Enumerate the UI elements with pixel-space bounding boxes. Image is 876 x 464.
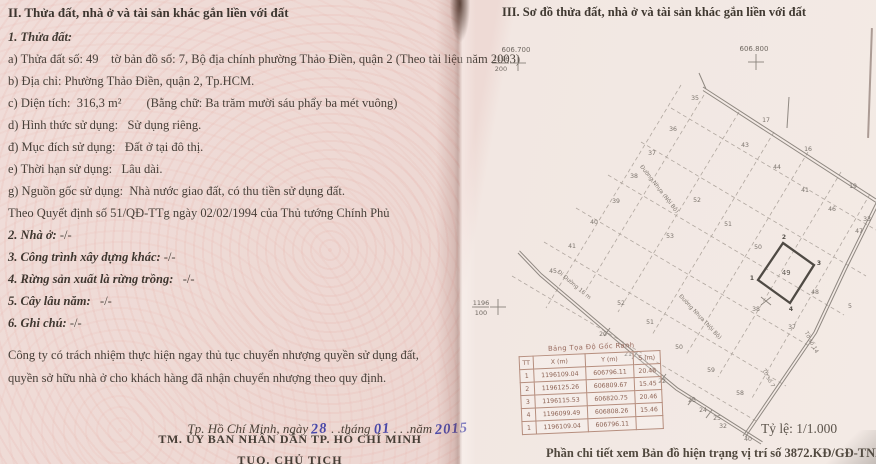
parcel-number: 52 [693, 197, 701, 204]
parcel-number: 51 [724, 221, 732, 228]
parcel-number: 52 [617, 300, 625, 307]
road-label: Đường Nhựa (Nội Bộ) [638, 164, 680, 215]
parcel-number: 47 [855, 228, 863, 235]
document-line: 3. Công trình xây dựng khác: -/- [8, 250, 464, 272]
grid-coordinate-fraction: 200 [495, 65, 507, 73]
parcel-number: 37 [788, 324, 796, 331]
document-line: g) Nguồn gốc sử dụng: Nhà nước giao đất,… [8, 184, 464, 206]
document-line: b) Địa chỉ: Phường Thảo Điền, quận 2, Tp… [8, 74, 464, 96]
boundary-coordinates-table: Bảng Tọa Độ Gốc Ranh TTX (m)Y (m)S (m)11… [518, 340, 668, 435]
parcel-number: 51 [646, 319, 654, 326]
signature-title-line: TUQ. CHỦ TỊCH [115, 453, 465, 464]
coordinates-table-cell: 15.45 [634, 377, 662, 391]
document-line: e) Thời hạn sử dụng: Lâu dài. [8, 162, 464, 184]
grid-coordinate-fraction: 1196 [473, 299, 490, 307]
signature-authority-line: TM. ỦY BAN NHÂN DÂN TP. HỒ CHÍ MINH [115, 432, 465, 447]
parcel-corner-label: 3 [817, 260, 821, 267]
page-section-iii: III. Sơ đồ thửa đất, nhà ở và tài sản kh… [456, 0, 876, 464]
parcel-number: 59 [707, 367, 715, 374]
document-line: a) Thửa đất số: 49 tờ bản đồ số: 7, Bộ đ… [8, 52, 464, 74]
parcel-corner-label: 1 [750, 275, 754, 282]
map-footer-note: Phần chi tiết xem Bản đồ hiện trạng vị t… [546, 446, 876, 461]
parcel-corner-label: 4 [789, 306, 793, 313]
parcel-number: 37 [648, 150, 656, 157]
parcel-number: 20 [599, 331, 607, 338]
document-line: d) Hình thức sử dụng: Sử dụng riêng. [8, 118, 464, 140]
document-line: 4. Rừng sản xuất là rừng trồng: -/- [8, 272, 464, 294]
coordinates-table-cell: 15.46 [635, 402, 663, 416]
parcel-number: 38 [752, 306, 760, 313]
coordinates-table-cell: 606796.11 [588, 417, 636, 432]
parcel-number: 50 [754, 244, 762, 251]
coordinates-table-cell: 20.48 [633, 364, 661, 378]
parcel-number: 40 [590, 219, 598, 226]
parcel-number: 41 [568, 243, 576, 250]
parcel-number: 24 [699, 407, 707, 414]
parcel-number: 46 [828, 206, 836, 213]
parcel-number: 44 [773, 164, 781, 171]
parcel-number: 19 [849, 183, 857, 190]
coordinates-table-cell: 4 [521, 408, 535, 422]
parcel-number: 40 [744, 436, 752, 443]
road-label: Đường Nhựa (Nội Bộ) [677, 293, 723, 341]
parcel-number: 25 [713, 415, 721, 422]
parcel-number: 16 [804, 146, 812, 153]
parcel-number: 32 [719, 423, 727, 430]
grid-coordinate-fraction: 100 [475, 309, 487, 317]
parcel-number: 41 [801, 187, 809, 194]
coordinates-table-cell [636, 415, 664, 429]
parcel-number: 38 [630, 173, 638, 180]
land-parcel-details: a) Thửa đất số: 49 tờ bản đồ số: 7, Bộ đ… [8, 52, 464, 338]
document-line: Theo Quyết định số 51/QĐ-TTg ngày 02/02/… [8, 206, 464, 228]
section-ii-title: II. Thửa đất, nhà ở và tài sản khác gắn … [8, 5, 289, 21]
grid-coordinate-fraction: 1196 [493, 55, 510, 63]
coordinates-table-cell: 2 [520, 382, 534, 396]
document-line: 5. Cây lâu năm: -/- [8, 294, 464, 316]
highlighted-parcel-number: 49 [782, 269, 791, 277]
parcel-number: 50 [675, 344, 683, 351]
scanned-land-certificate: II. Thửa đất, nhà ở và tài sản khác gắn … [0, 0, 876, 464]
road-label: Đi Đường 16 m [556, 269, 593, 301]
grid-coordinate-label: 606.700 [502, 46, 531, 54]
parcel-number: 36 [669, 126, 677, 133]
parcel-number: 53 [666, 233, 674, 240]
document-line: đ) Mục đích sử dụng: Đất ở tại đô thị. [8, 140, 464, 162]
grid-coordinate-label: 606.800 [740, 45, 769, 53]
subsection-thua-dat: 1. Thửa đất: [8, 30, 72, 45]
coordinates-table: TTX (m)Y (m)S (m)11196109.04606796.1120.… [519, 350, 664, 435]
parcel-number: 43 [741, 142, 749, 149]
parcel-number: 58 [736, 390, 744, 397]
transfer-obligation-note: Công ty có trách nhiệm thực hiện ngay th… [8, 344, 436, 390]
coordinates-table-cell: 20.46 [635, 390, 663, 404]
parcel-number: 23 [688, 397, 696, 404]
coordinates-table-cell: 1 [520, 369, 534, 383]
parcel-number: 35 [691, 95, 699, 102]
road-label: Tờ số 14 [802, 329, 820, 355]
parcel-corner-label: 2 [782, 234, 786, 241]
coordinates-table-cell: 1196109.04 [536, 419, 589, 434]
x-mark [761, 297, 771, 305]
page-section-ii: II. Thửa đất, nhà ở và tài sản khác gắn … [0, 0, 460, 464]
parcel-number: 17 [762, 117, 770, 124]
parcel-number: 33 [863, 216, 871, 223]
parcel-number: 39 [612, 198, 620, 205]
parcel-number: 5 [848, 303, 852, 310]
document-line: 6. Ghi chú: -/- [8, 316, 464, 338]
parcel-number: 48 [811, 289, 819, 296]
document-line: c) Diện tích: 316,3 m² (Bằng chữ: Ba tră… [8, 96, 464, 118]
coordinates-table-header-cell: TT [519, 356, 533, 370]
coordinates-table-header-cell: S (m) [633, 351, 661, 365]
coordinates-table-cell: 1 [522, 421, 536, 435]
map-scale-label: Tỷ lệ: 1/1.000 [761, 421, 837, 437]
coordinates-table-cell: 3 [521, 395, 535, 409]
document-line: 2. Nhà ở: -/- [8, 228, 464, 250]
